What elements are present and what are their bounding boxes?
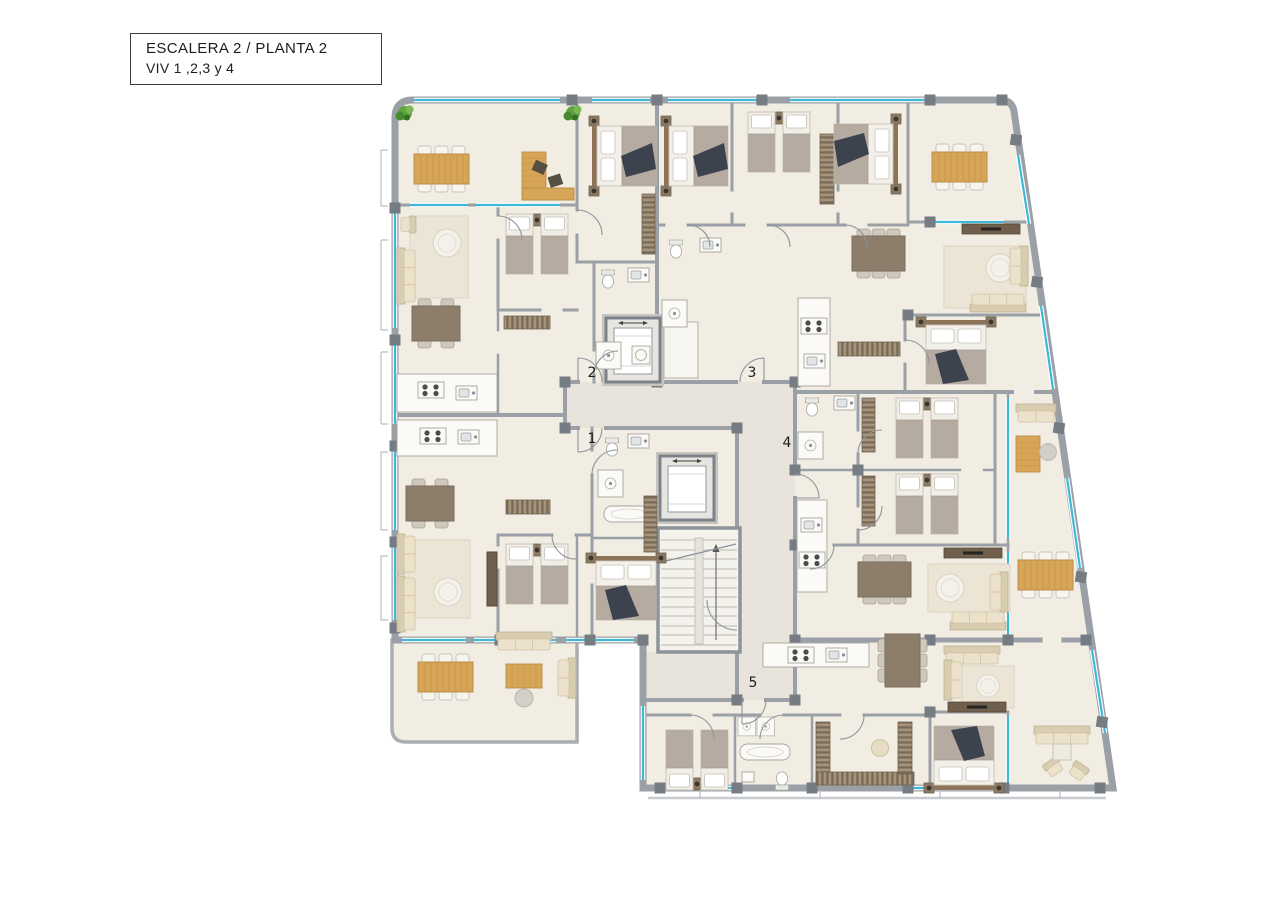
sink-icon (628, 268, 649, 282)
unit-label-3: 3 (748, 365, 757, 381)
terrace-table-icon (418, 654, 473, 700)
sofa-icon (496, 632, 552, 650)
toilet-icon (776, 772, 789, 790)
sofa-icon (397, 576, 415, 632)
kitchen-counter (798, 298, 830, 386)
shower-icon (738, 717, 756, 736)
round-rug (936, 574, 964, 602)
unit-label-1: 1 (588, 431, 597, 447)
tv-unit-icon (487, 552, 497, 606)
round-rug (1040, 444, 1057, 461)
wardrobe-icon (862, 476, 875, 526)
dining-table-icon (858, 555, 911, 604)
sink-icon (458, 430, 479, 444)
dining-table-icon (412, 299, 460, 348)
unit-label-4: 4 (783, 435, 792, 451)
floorplan-svg: 1 2 3 4 5 (0, 0, 1280, 905)
unit-label-2: 2 (588, 365, 597, 381)
toilet-icon (606, 438, 619, 456)
kitchen-counter (763, 643, 869, 667)
armchair-icon (401, 216, 416, 233)
elevator-icon (656, 452, 718, 524)
wardrobe-icon (898, 722, 912, 774)
wardrobe-icon (838, 342, 900, 356)
sofa-icon (1010, 246, 1028, 286)
kitchen-counter (797, 500, 827, 592)
tv-unit-icon (948, 702, 1006, 712)
bench-icon (1016, 404, 1056, 422)
round-rug (433, 229, 461, 257)
desk-icon (506, 664, 542, 688)
unit-label-5: 5 (749, 675, 758, 691)
bench-icon (558, 658, 576, 698)
armchair-icon (872, 740, 889, 757)
sink-icon (826, 648, 847, 662)
dining-table-icon (852, 229, 905, 278)
sink-icon (742, 772, 754, 782)
dining-table-icon (878, 634, 927, 687)
sofa-icon (944, 646, 1000, 664)
shower-icon (662, 300, 687, 327)
sink-icon (804, 354, 825, 368)
washer-icon (632, 346, 650, 364)
wardrobe-icon (862, 398, 875, 452)
double-bed-icon (661, 116, 728, 196)
coffee-table-icon (1053, 744, 1071, 760)
sink-icon (801, 518, 822, 532)
terrace-table-icon (414, 146, 469, 192)
shower-icon (598, 470, 623, 497)
stove-icon (799, 552, 825, 568)
bathtub-icon (740, 744, 790, 760)
sofa-icon (970, 294, 1026, 312)
dining-table-icon (406, 479, 454, 528)
toilet-icon (670, 240, 683, 258)
terrace-table-icon (1018, 552, 1073, 598)
kitchen-counter (397, 374, 497, 412)
shower-icon (596, 342, 621, 369)
sink-icon (628, 434, 649, 448)
shower-icon (757, 717, 775, 736)
tv-unit-icon (962, 224, 1020, 234)
sink-icon (456, 386, 477, 400)
wardrobe-icon (642, 194, 655, 254)
round-rug (977, 675, 999, 697)
outdoor-sofa-icon (1034, 726, 1090, 744)
shower-icon (798, 432, 823, 459)
floorplan-page: ESCALERA 2 / PLANTA 2 VIV 1 ,2,3 y 4 (0, 0, 1280, 905)
rug (410, 216, 468, 298)
desk-icon (522, 188, 574, 200)
sofa-icon (944, 660, 962, 700)
sofa-icon (950, 612, 1006, 630)
wardrobe-icon (504, 316, 550, 329)
sofa-icon (397, 248, 415, 304)
toilet-icon (602, 270, 615, 288)
toilet-icon (806, 398, 819, 416)
staircase-icon (658, 528, 740, 652)
stove-icon (788, 647, 814, 663)
double-bed-icon (586, 553, 666, 620)
desk-icon (1016, 436, 1040, 472)
terrace-table-icon (932, 144, 987, 190)
stair-landing-floor (643, 652, 737, 700)
stove-icon (418, 382, 444, 398)
wardrobe-icon (820, 134, 834, 204)
stove-icon (420, 428, 446, 444)
storage-room (664, 322, 698, 378)
stove-icon (801, 318, 827, 334)
wardrobe-icon (644, 496, 657, 552)
sink-icon (834, 396, 855, 410)
sofa-icon (990, 572, 1008, 612)
round-rug (515, 689, 533, 707)
sink-icon (700, 238, 721, 252)
sofa-icon (397, 534, 415, 574)
wardrobe-icon (506, 500, 550, 514)
double-bed-icon (834, 114, 901, 194)
kitchen-counter (397, 420, 497, 456)
rug (408, 540, 470, 618)
double-bed-icon (924, 726, 1004, 793)
double-bed-icon (916, 317, 996, 384)
tv-unit-icon (944, 548, 1002, 558)
round-rug (434, 578, 462, 606)
double-bed-icon (589, 116, 656, 196)
